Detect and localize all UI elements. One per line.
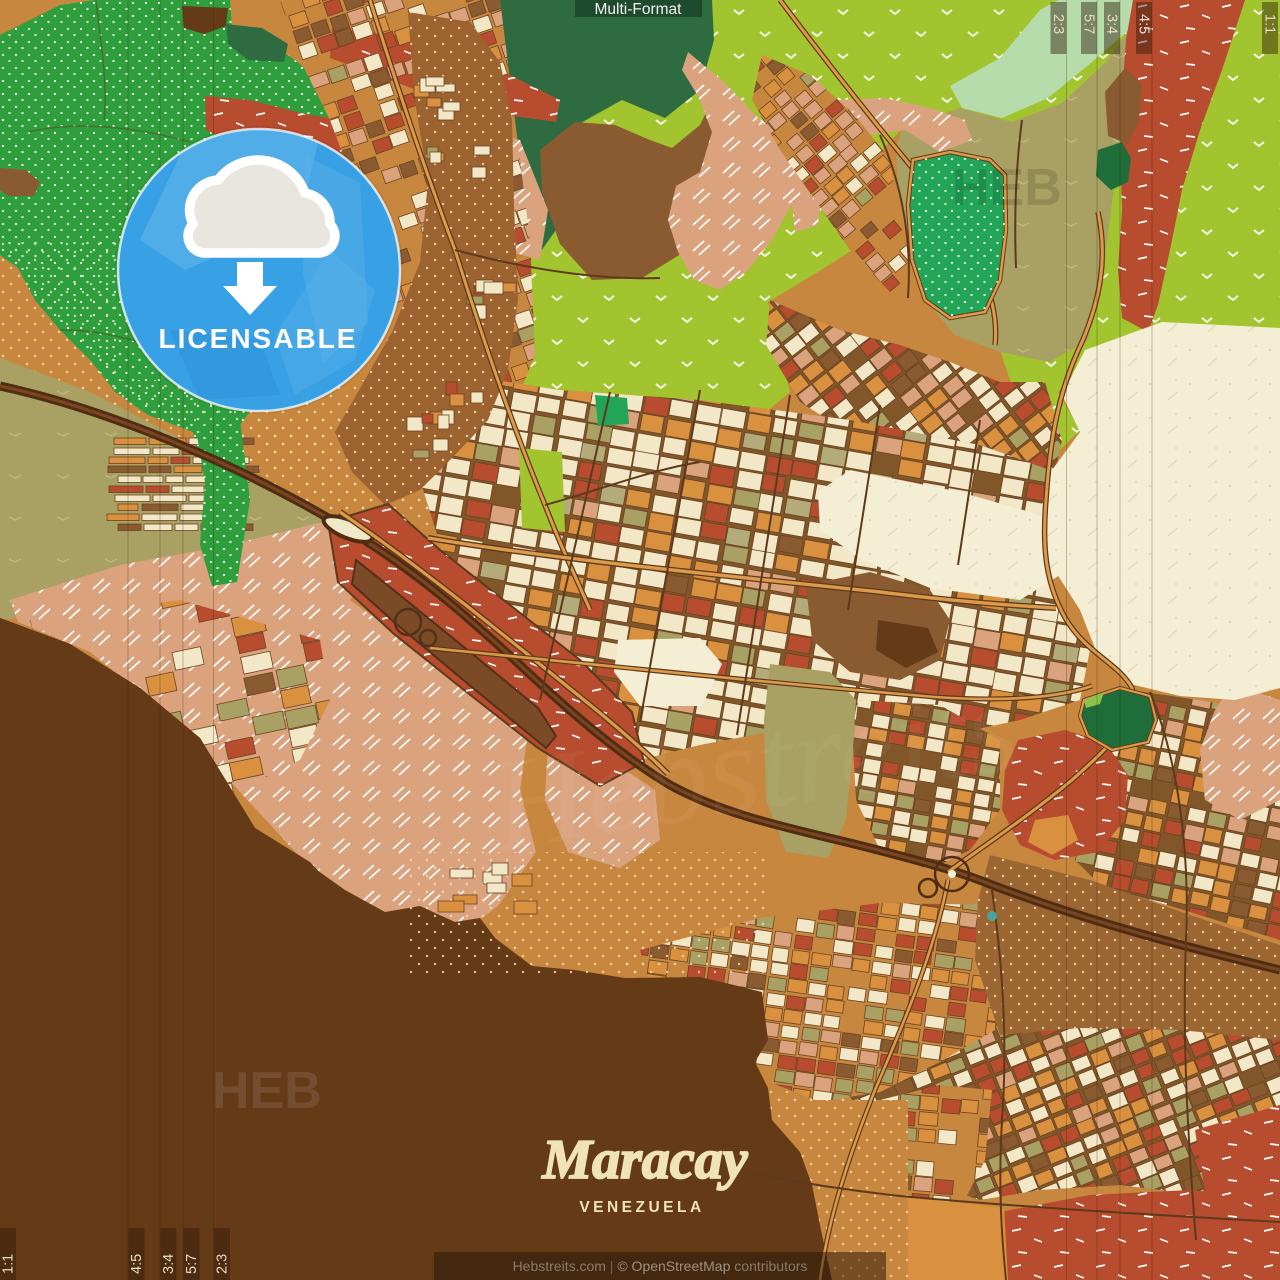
svg-text:4:5: 4:5	[1136, 14, 1152, 34]
svg-text:5:7: 5:7	[1081, 14, 1097, 34]
svg-text:Hebstreits.com | © OpenStreetM: Hebstreits.com | © OpenStreetMap contrib…	[513, 1258, 808, 1274]
svg-text:2:3: 2:3	[1050, 14, 1066, 34]
svg-text:5:7: 5:7	[184, 1254, 200, 1274]
svg-text:VENEZUELA: VENEZUELA	[579, 1199, 704, 1216]
svg-text:HEB: HEB	[212, 1062, 322, 1120]
svg-text:1:1: 1:1	[1, 1254, 17, 1274]
svg-text:HEB: HEB	[952, 159, 1062, 217]
svg-text:1:1: 1:1	[1262, 14, 1278, 34]
svg-text:Maracay: Maracay	[541, 1129, 748, 1191]
svg-text:Multi-Format: Multi-Format	[595, 1, 683, 18]
svg-text:3:4: 3:4	[1104, 14, 1120, 34]
svg-text:3:4: 3:4	[161, 1254, 177, 1274]
svg-text:4:5: 4:5	[129, 1254, 145, 1274]
svg-text:LICENSABLE: LICENSABLE	[159, 323, 358, 354]
svg-text:2:3: 2:3	[215, 1254, 231, 1274]
